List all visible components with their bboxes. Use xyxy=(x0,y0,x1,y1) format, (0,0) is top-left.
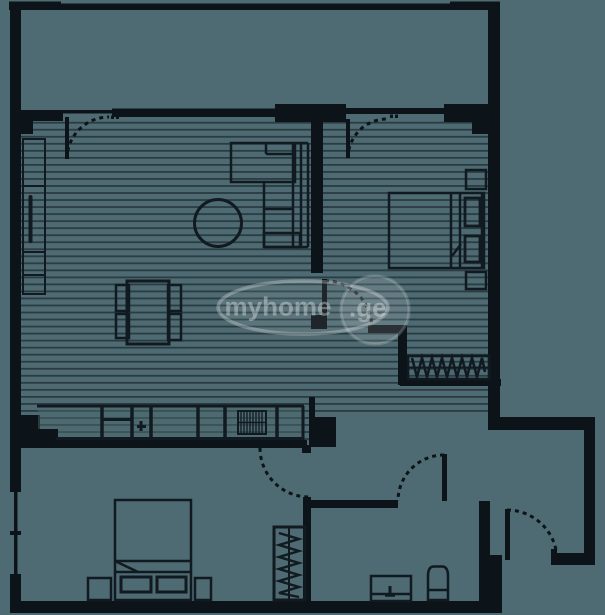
svg-text:myhome: myhome xyxy=(225,292,332,322)
svg-text:.ge: .ge xyxy=(349,293,387,323)
